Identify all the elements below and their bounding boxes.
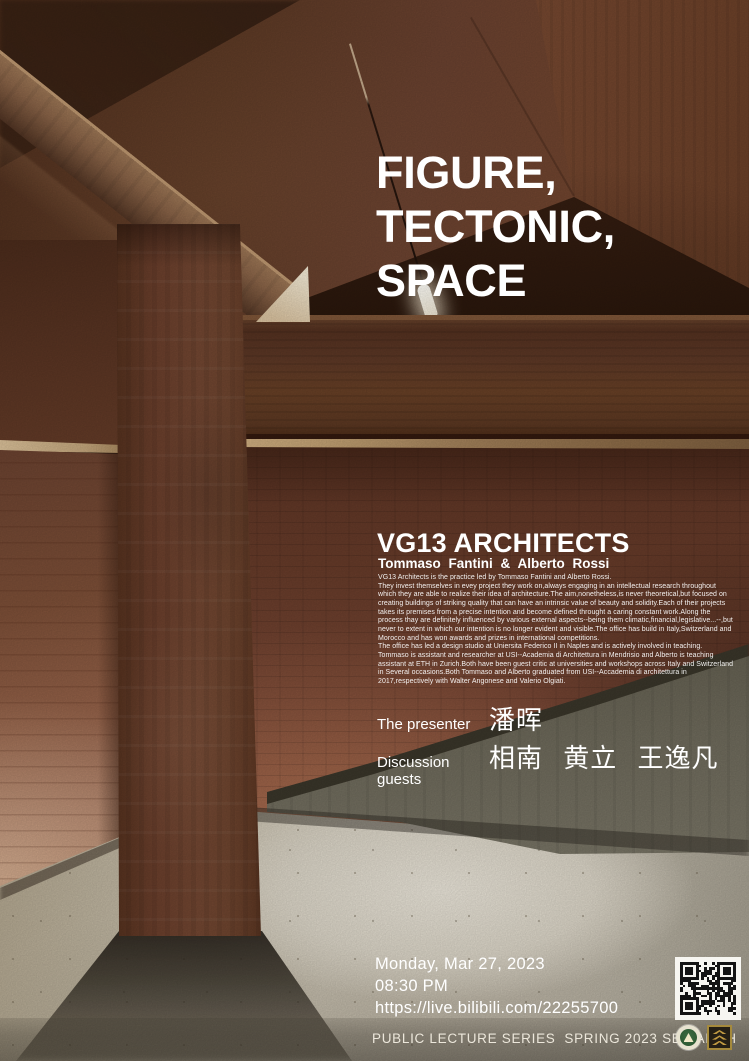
title-line-3: SPACE xyxy=(376,254,615,308)
event-date: Monday, Mar 27, 2023 xyxy=(375,953,618,975)
background-photo xyxy=(0,0,749,1061)
seu-seal-logo xyxy=(676,1025,701,1050)
qr-code-pattern xyxy=(680,962,736,1015)
title-line-1: FIGURE, xyxy=(376,146,615,200)
chevron-icon xyxy=(712,1035,727,1039)
poster-title: FIGURE, TECTONIC, SPACE xyxy=(376,146,615,308)
horizontal-beam xyxy=(233,315,749,439)
event-info: Monday, Mar 27, 2023 08:30 PM https://li… xyxy=(375,953,618,1019)
studio-bio: VG13 Architects is the practice led by T… xyxy=(378,574,749,687)
qr-code xyxy=(675,957,741,1020)
chevron-icon xyxy=(712,1041,727,1045)
presenter-row: The presenter 潘晖 xyxy=(377,703,543,737)
studio-principals: Tommaso Fantini & Alberto Rossi xyxy=(378,556,609,572)
seu-arch-logo xyxy=(707,1025,732,1050)
stream-url-link[interactable]: https://live.bilibili.com/22255700 xyxy=(375,997,618,1019)
left-upper-wall xyxy=(0,240,122,452)
lecture-poster: FIGURE, TECTONIC, SPACE VG13 ARCHITECTS … xyxy=(0,0,749,1061)
footer-logos xyxy=(676,1025,732,1050)
left-brick-wall xyxy=(0,446,122,898)
seu-seal-inner xyxy=(680,1029,697,1046)
guests-label: Discussion guests xyxy=(377,754,489,788)
presenter-name: 潘晖 xyxy=(489,703,543,737)
guests-row: Discussion guests 相南 黄立 王逸凡 xyxy=(377,741,718,788)
chevron-icon xyxy=(712,1030,727,1034)
guests-names: 相南 黄立 王逸凡 xyxy=(489,741,718,775)
title-line-2: TECTONIC, xyxy=(376,200,615,254)
presenter-label: The presenter xyxy=(377,716,489,733)
seu-seal-triangle-icon xyxy=(684,1033,694,1042)
studio-name: VG13 ARCHITECTS xyxy=(377,529,630,557)
event-time: 08:30 PM xyxy=(375,975,618,997)
